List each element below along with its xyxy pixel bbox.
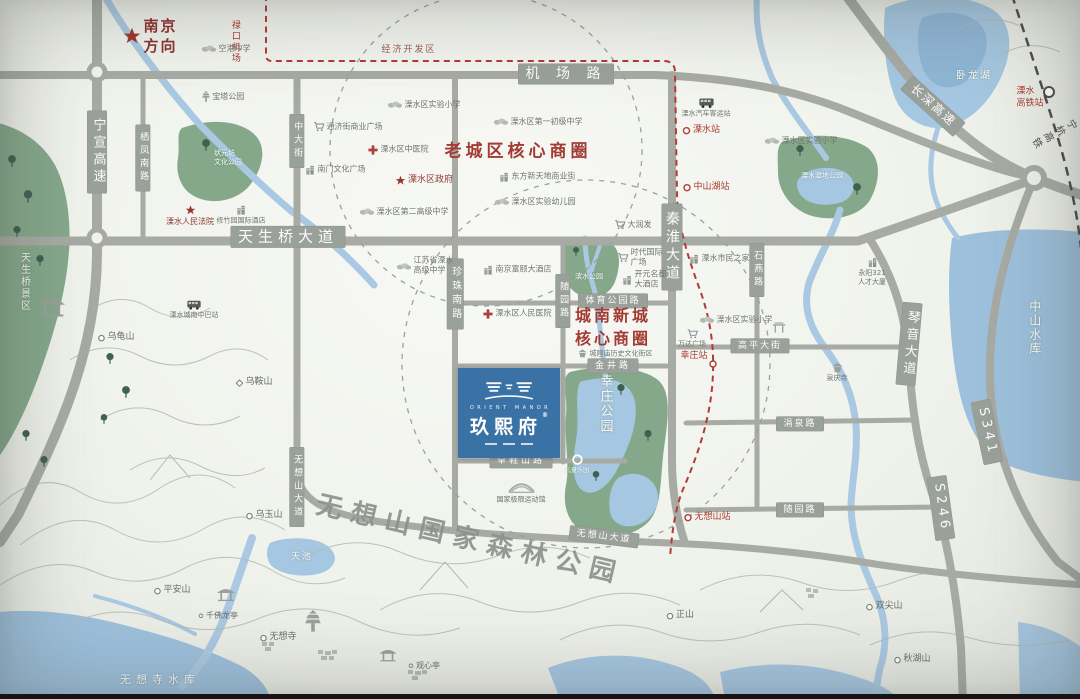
- treeG-icon: [644, 427, 653, 446]
- cart-icon: [615, 220, 626, 230]
- treeG-icon: [22, 427, 31, 446]
- treeG-icon: [100, 410, 108, 429]
- lishui-tcm-hospital-text: 溧水区中医院: [381, 145, 429, 155]
- project-tagline-rule: [485, 443, 533, 445]
- treeg-icon: [397, 262, 412, 270]
- circ-icon: [259, 634, 267, 642]
- konggang-middle-school: 空港中学: [202, 44, 251, 54]
- bld-icon: [483, 265, 494, 276]
- xingzhuang-park: 幸庄公园: [596, 374, 613, 434]
- tianchi-pond: 天池: [291, 552, 313, 564]
- station-icon: [683, 514, 692, 523]
- lishui-bus-terminal: 溧水汽车客运站: [682, 98, 731, 119]
- treeg-icon: [360, 208, 375, 216]
- station-icon: [682, 184, 691, 193]
- yongyang-321-tower-text: 永阳321 人才大厦: [858, 269, 886, 287]
- kaiyuan-mingdu-hotel-text: 开元名都 大酒店: [635, 270, 667, 291]
- ringw-icon: [570, 453, 583, 466]
- zhongshanhu-station: 中山湖站: [682, 182, 729, 194]
- lishui-people-hospital-text: 溧水区人民医院: [496, 309, 552, 319]
- lukou-airport-text: 禄口机场: [228, 20, 240, 64]
- shuangjian-mountain: 双尖山: [865, 601, 902, 613]
- treeG-icon: [36, 252, 45, 271]
- pagoda-icon: [305, 610, 322, 638]
- dongfang-xintiandi: 东方新天地商业街: [499, 172, 576, 183]
- lishui-people-hospital: 溧水区人民医院: [483, 309, 552, 320]
- pagoda-icon: [202, 91, 210, 103]
- national-extreme-sports-hall: 国家极限运动馆: [497, 481, 546, 504]
- nanjing-fuyi-hotel-text: 南京富颐大酒店: [496, 265, 552, 275]
- lishui-no2-senior-middle: 溧水区第二高级中学: [360, 207, 449, 217]
- suiyuan-road-h: 随园路: [776, 503, 823, 517]
- jiangsu-lishui-senior-middle-text: 江苏省溧水 高级中学: [414, 256, 454, 277]
- kaiyuan-mingdu-hotel: 开元名都 大酒店: [622, 270, 667, 291]
- diam-icon: [235, 379, 243, 387]
- wuxiangsi-reservoir: 无想寺水库: [120, 673, 200, 687]
- orient-manor-logomark: [483, 381, 535, 403]
- bld-icon: [499, 172, 510, 183]
- economic-zone: 经济开发区: [381, 45, 436, 57]
- lishui-experimental-primary-2: 溧水区实验小学: [765, 136, 838, 146]
- wuxiang-temple-text: 无想寺: [269, 632, 296, 644]
- zhuangyuanfang-park-text: 状元坊 文化公园: [214, 149, 242, 167]
- dongfang-xintiandi-text: 东方新天地商业街: [512, 172, 576, 182]
- circ-icon: [666, 612, 674, 620]
- shuangjian-mountain-text: 双尖山: [875, 601, 902, 613]
- binshui-park-text: 滨水公园: [575, 272, 603, 281]
- treeG-icon: [121, 384, 131, 403]
- cross-icon: [483, 309, 494, 320]
- bld-icon: [689, 254, 700, 265]
- registered-mark: ®: [542, 412, 553, 419]
- treeg-icon: [202, 45, 217, 53]
- treeG-icon: [7, 153, 17, 172]
- kids-paradise: 儿童乐园: [565, 453, 589, 475]
- shidai-intl-plaza-text: 时代国际 广场: [631, 248, 663, 269]
- xingzhuang-station-text: 幸庄站: [680, 351, 707, 363]
- old-town-core-zone: 老城区核心商圈: [445, 140, 592, 165]
- village-sketch: [262, 588, 818, 680]
- qiuhu-mountain: 秋湖山: [893, 654, 930, 666]
- cross-icon: [368, 145, 379, 156]
- economic-zone-text: 经济开发区: [381, 45, 436, 57]
- lishui-experimental-kindergarten-text: 溧水区实验幼儿园: [512, 197, 576, 207]
- chengnan-core-zone: 城南新城 核心商圈: [575, 304, 651, 350]
- qiuhu-mountain-text: 秋湖山: [903, 654, 930, 666]
- kids-paradise-text: 儿童乐园: [565, 467, 589, 475]
- shidai-intl-plaza: 时代国际 广场: [618, 248, 663, 269]
- chenghuangmiao-block-text: 城隍庙历史文化街区: [590, 349, 653, 358]
- star-icon: [122, 27, 141, 46]
- lishui-experimental-primary-2-text: 溧水区实验小学: [782, 136, 838, 146]
- old-town-core-zone-text: 老城区核心商圈: [445, 140, 592, 165]
- lishui-experimental-primary-1: 溧水区实验小学: [388, 100, 461, 110]
- zhongda-street: 中大街: [290, 115, 304, 168]
- lishui-people-court-text: 溧水人民法院: [166, 217, 214, 227]
- darunfa-supermarket: 大润发: [615, 220, 652, 230]
- tongjijie-plaza-text: 通济街商业广场: [327, 122, 383, 132]
- wanda-plaza: 万达广场: [678, 329, 706, 349]
- shiyan-road: 石燕路: [750, 244, 764, 297]
- nanjing-direction-text: 南京 方向: [143, 16, 177, 57]
- treeg-icon: [494, 118, 509, 126]
- national-extreme-sports-hall-text: 国家极限运动馆: [497, 495, 546, 504]
- tianshengqiao-scenic-text: 天生桥景区: [18, 252, 31, 312]
- shidi-park: 溧水湿地公园: [801, 171, 843, 180]
- pavilion-icon: [217, 587, 235, 606]
- suiyuan-road-v: 随园路: [556, 275, 570, 328]
- star-icon: [395, 176, 406, 187]
- wuxiang-temple: 无想寺: [259, 632, 296, 644]
- station-icon: [709, 354, 718, 373]
- circ-icon: [245, 512, 253, 520]
- treeG-icon: [617, 381, 626, 400]
- treeg-icon: [495, 198, 510, 206]
- lishui-chengnan-midibus: 溧水城南中巴站: [170, 300, 219, 320]
- jiangsu-lishui-senior-middle: 江苏省溧水 高级中学: [397, 256, 454, 277]
- lishui-metro-station-text: 溧水站: [693, 125, 720, 137]
- circ-icon: [893, 656, 901, 664]
- paifang-icon: [772, 318, 786, 337]
- treeg-icon: [700, 316, 715, 324]
- cart-icon: [687, 329, 698, 339]
- bus-icon: [187, 300, 202, 310]
- treeG-icon: [106, 350, 115, 369]
- treeG-icon: [201, 137, 211, 156]
- circ-icon: [97, 334, 105, 342]
- lishui-tcm-hospital: 溧水区中医院: [368, 145, 429, 156]
- tianshengqiao-avenue: 天生桥大道: [231, 226, 345, 247]
- wuyu-mountain: 乌玉山: [245, 510, 282, 522]
- wugui-mountain: 乌龟山: [97, 332, 134, 344]
- cart-icon: [618, 253, 629, 263]
- nanmen-culture-plaza: 南门文化广场: [305, 165, 366, 176]
- station-icon: [682, 127, 691, 136]
- lishui-hsr-station: 溧水 高铁站: [1016, 86, 1043, 109]
- bld-icon: [867, 257, 878, 268]
- qifeng-south-road: 栖凤南路: [136, 125, 150, 191]
- ningxuan-expressway: 宁宣高速: [88, 111, 107, 193]
- bld-icon: [305, 165, 316, 176]
- quanqing-temple-text: 泉庆寺: [827, 374, 848, 383]
- star-icon: [185, 205, 196, 216]
- treeg-icon: [765, 137, 780, 145]
- treeG-icon: [572, 242, 580, 261]
- lishui-bus-terminal-text: 溧水汽车客运站: [682, 109, 731, 118]
- dot-icon: [408, 663, 414, 669]
- lishui-no1-junior-middle: 溧水区第一初级中学: [494, 117, 583, 127]
- temple-icon: [831, 363, 843, 373]
- lishui-citizen-center-text: 溧水市民之家: [702, 254, 750, 264]
- stadium-icon: [506, 481, 536, 494]
- quanqing-temple: 泉庆寺: [827, 363, 848, 383]
- darunfa-supermarket-text: 大润发: [628, 220, 652, 230]
- lishui-hsr-station-text: 溧水 高铁站: [1016, 86, 1043, 109]
- qianfo-pavilion-text: 千佛龙亭: [206, 611, 238, 621]
- wuan-mountain: 乌鞍山: [235, 377, 272, 389]
- lishui-people-court: 溧水人民法院: [166, 205, 214, 227]
- treeG-icon: [852, 181, 862, 200]
- wolong-lake-text: 卧龙湖: [956, 70, 992, 83]
- lishui-experimental-kindergarten: 溧水区实验幼儿园: [495, 197, 576, 207]
- pingan-mountain-text: 平安山: [163, 585, 190, 597]
- shidi-park-text: 溧水湿地公园: [801, 171, 843, 180]
- wolong-lake: 卧龙湖: [956, 70, 992, 83]
- chengnan-core-zone-text: 城南新城 核心商圈: [575, 304, 651, 350]
- pingan-mountain: 平安山: [153, 585, 190, 597]
- yongyang-321-tower: 永阳321 人才大厦: [858, 257, 886, 287]
- dot-icon: [198, 613, 204, 619]
- wuxiangshan-station-text: 无想山站: [694, 512, 730, 524]
- gaoping-street: 高平大街: [731, 339, 789, 353]
- tianchi-pond-text: 天池: [291, 552, 313, 564]
- wugui-mountain-text: 乌龟山: [107, 332, 134, 344]
- zhongshan-reservoir: 中山水库: [1026, 300, 1042, 356]
- circ-icon: [865, 603, 873, 611]
- lishui-experimental-primary-1-text: 溧水区实验小学: [405, 100, 461, 110]
- project-name-cn: 玖熙府®: [470, 412, 553, 439]
- lishui-district-government-text: 溧水区政府: [408, 175, 453, 187]
- bld-icon: [236, 204, 247, 215]
- guanxin-pavilion-text: 观心亭: [416, 661, 440, 671]
- cart-icon: [314, 122, 325, 132]
- chenghuangmiao-block: 城隍庙历史文化街区: [578, 349, 653, 358]
- temple-icon: [578, 350, 588, 359]
- zhongshan-reservoir-text: 中山水库: [1026, 300, 1042, 356]
- wuan-mountain-text: 乌鞍山: [245, 377, 272, 389]
- zheng-mountain-text: 正山: [676, 610, 694, 622]
- jinjing-road: 金井路: [588, 359, 638, 373]
- lishui-citizen-center: 溧水市民之家: [689, 254, 750, 265]
- treeG-icon: [13, 223, 22, 242]
- lishui-experimental-primary-3-text: 溧水区实验小学: [717, 315, 773, 325]
- binshui-park: 滨水公园: [575, 272, 603, 281]
- lishui-no1-junior-middle-text: 溧水区第一初级中学: [511, 117, 583, 127]
- qianfo-pavilion: 千佛龙亭: [198, 611, 238, 621]
- lishui-chengnan-midibus-text: 溧水城南中巴站: [170, 311, 219, 320]
- treeG-icon: [592, 467, 600, 486]
- lukou-airport: 禄口机场: [228, 20, 240, 64]
- juanquan-road: 涓泉路: [776, 417, 823, 431]
- zhuangyuanfang-park: 状元坊 文化公园: [214, 149, 242, 167]
- treeG-icon: [40, 453, 49, 472]
- wuxiangsi-reservoir-text: 无想寺水库: [120, 673, 200, 687]
- photo-bottom-edge: [0, 694, 1080, 699]
- wanda-plaza-text: 万达广场: [678, 340, 706, 349]
- bld-icon: [622, 275, 633, 286]
- konggang-middle-school-text: 空港中学: [219, 44, 251, 54]
- lishui-no2-senior-middle-text: 溧水区第二高级中学: [377, 207, 449, 217]
- nanjing-fuyi-hotel: 南京富颐大酒店: [483, 265, 552, 276]
- xiuzhuyuan-hotel-text: 修竹园国际酒店: [217, 216, 266, 225]
- jichang-road: 机 场 路: [519, 64, 614, 84]
- xingzhuang-station: 幸庄站: [680, 351, 707, 363]
- project-logo: ORIENT MANOR 玖熙府®: [458, 368, 560, 458]
- xiuzhuyuan-hotel: 修竹园国际酒店: [217, 204, 266, 225]
- circ-icon: [153, 587, 161, 595]
- location-map: ORIENT MANOR 玖熙府® 机 场 路天生桥大道宁宣高速栖凤南路中大街珍…: [0, 0, 1080, 699]
- wuxiangshan-avenue-v: 无想山大道: [290, 448, 304, 527]
- nanjing-direction: 南京 方向: [122, 16, 177, 57]
- treeG-icon: [23, 189, 34, 208]
- bus-icon: [698, 98, 714, 109]
- pavilion-icon: [380, 648, 397, 667]
- tongjijie-plaza: 通济街商业广场: [314, 122, 383, 132]
- project-name-en: ORIENT MANOR: [470, 405, 551, 411]
- lishui-district-government: 溧水区政府: [395, 175, 453, 187]
- nanmen-culture-plaza-text: 南门文化广场: [318, 165, 366, 175]
- wuyu-mountain-text: 乌玉山: [255, 510, 282, 522]
- wuxiangshan-station: 无想山站: [683, 512, 730, 524]
- pavilion-icon: [39, 298, 65, 322]
- baota-park: 宝塔公园: [202, 91, 244, 103]
- xingzhuang-park-text: 幸庄公园: [596, 374, 613, 434]
- zheng-mountain: 正山: [666, 610, 694, 622]
- zhongshanhu-station-text: 中山湖站: [693, 182, 729, 194]
- lishui-experimental-primary-3: 溧水区实验小学: [700, 315, 773, 325]
- baota-park-text: 宝塔公园: [212, 92, 244, 102]
- guanxin-pavilion: 观心亭: [408, 661, 440, 671]
- lishui-metro-station: 溧水站: [682, 125, 720, 137]
- treeg-icon: [388, 101, 403, 109]
- tianshengqiao-scenic: 天生桥景区: [18, 252, 31, 312]
